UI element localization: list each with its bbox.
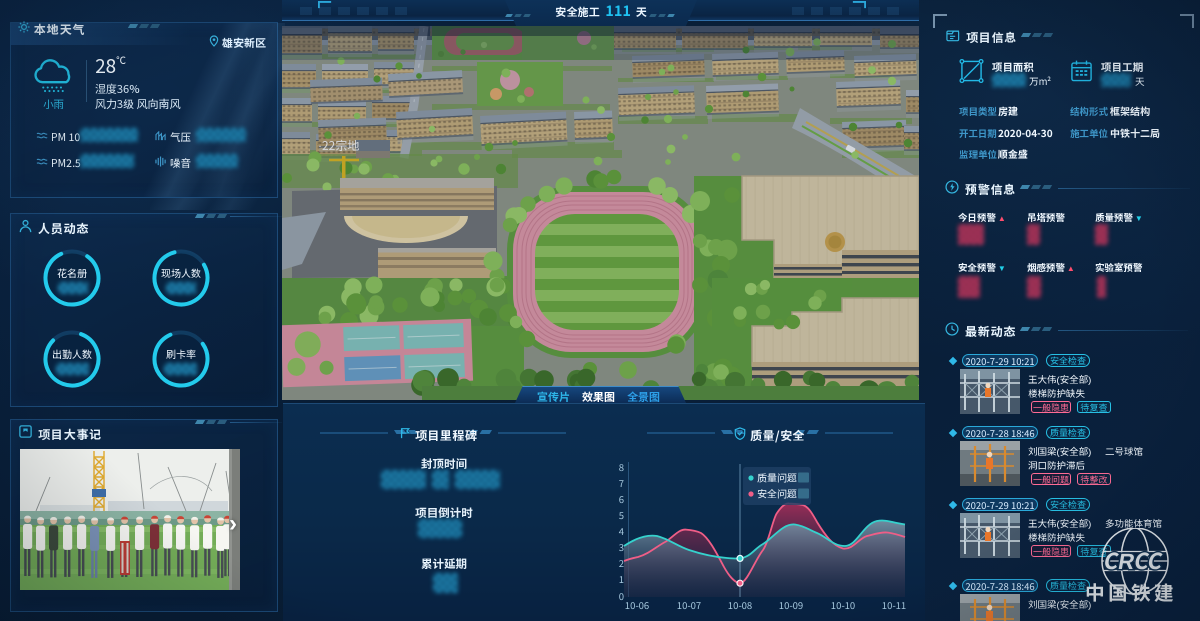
svg-text:10-09: 10-09 <box>779 598 803 612</box>
svg-text:7: 7 <box>619 476 624 490</box>
svg-text:8: 8 <box>619 460 624 474</box>
svg-text:2: 2 <box>619 556 624 570</box>
svg-text:中国铁建: 中国铁建 <box>1085 577 1177 606</box>
svg-text:10-06: 10-06 <box>625 598 649 612</box>
svg-text:1: 1 <box>619 572 624 586</box>
svg-text:10-07: 10-07 <box>677 598 701 612</box>
svg-text:10-08: 10-08 <box>728 598 752 612</box>
svg-text:CRCC: CRCC <box>1102 544 1166 576</box>
svg-text:6: 6 <box>619 492 624 506</box>
svg-text:质量问题: 质量问题 <box>757 470 797 485</box>
svg-text:10-10: 10-10 <box>831 598 855 612</box>
svg-text:5: 5 <box>619 508 624 522</box>
svg-text:4: 4 <box>619 524 624 538</box>
svg-text:安全问题: 安全问题 <box>757 486 797 501</box>
svg-text:10-11: 10-11 <box>882 598 906 612</box>
svg-text:3: 3 <box>619 540 624 554</box>
svg-text:0: 0 <box>619 589 624 603</box>
